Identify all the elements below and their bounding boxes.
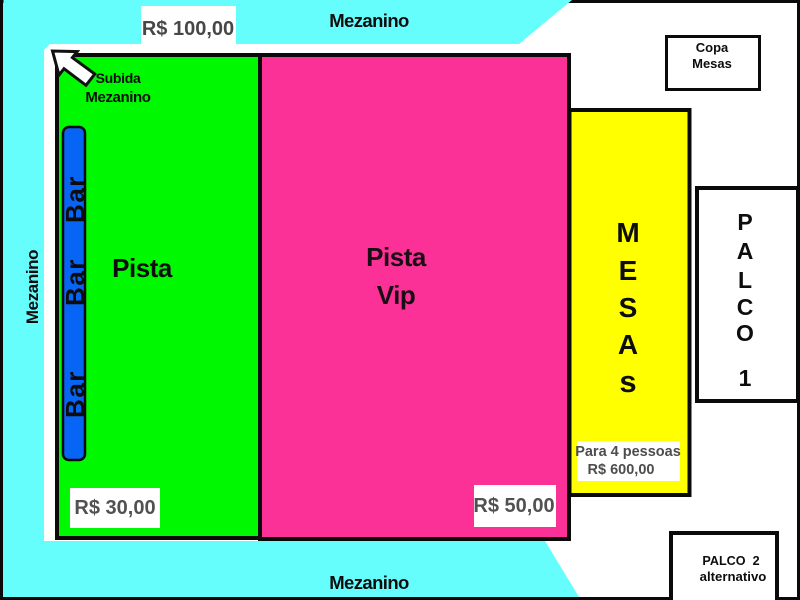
- svg-text:Mezanino: Mezanino: [329, 572, 409, 593]
- svg-text:Bar: Bar: [60, 258, 90, 306]
- svg-text:alternativo: alternativo: [700, 569, 767, 584]
- svg-text:A: A: [737, 238, 754, 264]
- svg-text:R$ 600,00: R$ 600,00: [588, 462, 655, 478]
- svg-text:Bar: Bar: [60, 370, 90, 418]
- svg-text:O: O: [736, 320, 754, 346]
- svg-text:Mesas: Mesas: [692, 56, 732, 71]
- svg-text:1: 1: [739, 365, 752, 391]
- svg-text:Pista: Pista: [112, 253, 173, 283]
- svg-text:S: S: [619, 292, 638, 323]
- svg-text:PALCO 2: PALCO 2: [702, 554, 759, 568]
- svg-text:L: L: [738, 267, 752, 293]
- svg-text:Mezanino: Mezanino: [85, 89, 150, 106]
- svg-text:P: P: [737, 209, 752, 235]
- svg-text:E: E: [619, 255, 638, 286]
- svg-text:Copa: Copa: [696, 40, 729, 55]
- svg-text:Mezanino: Mezanino: [329, 10, 409, 31]
- svg-text:Bar: Bar: [60, 175, 90, 223]
- svg-text:Vip: Vip: [377, 280, 415, 310]
- svg-text:Subida: Subida: [96, 70, 141, 86]
- svg-text:R$ 30,00: R$ 30,00: [74, 497, 155, 519]
- svg-text:Pista: Pista: [366, 242, 427, 272]
- svg-text:R$ 50,00: R$ 50,00: [473, 495, 554, 517]
- svg-text:Mezanino: Mezanino: [23, 250, 42, 324]
- svg-text:R$ 100,00: R$ 100,00: [142, 18, 234, 40]
- svg-text:Para 4 pessoas: Para 4 pessoas: [575, 444, 681, 460]
- svg-text:s: s: [619, 364, 636, 399]
- svg-text:A: A: [618, 329, 638, 360]
- svg-text:M: M: [616, 217, 639, 248]
- svg-text:C: C: [737, 294, 754, 320]
